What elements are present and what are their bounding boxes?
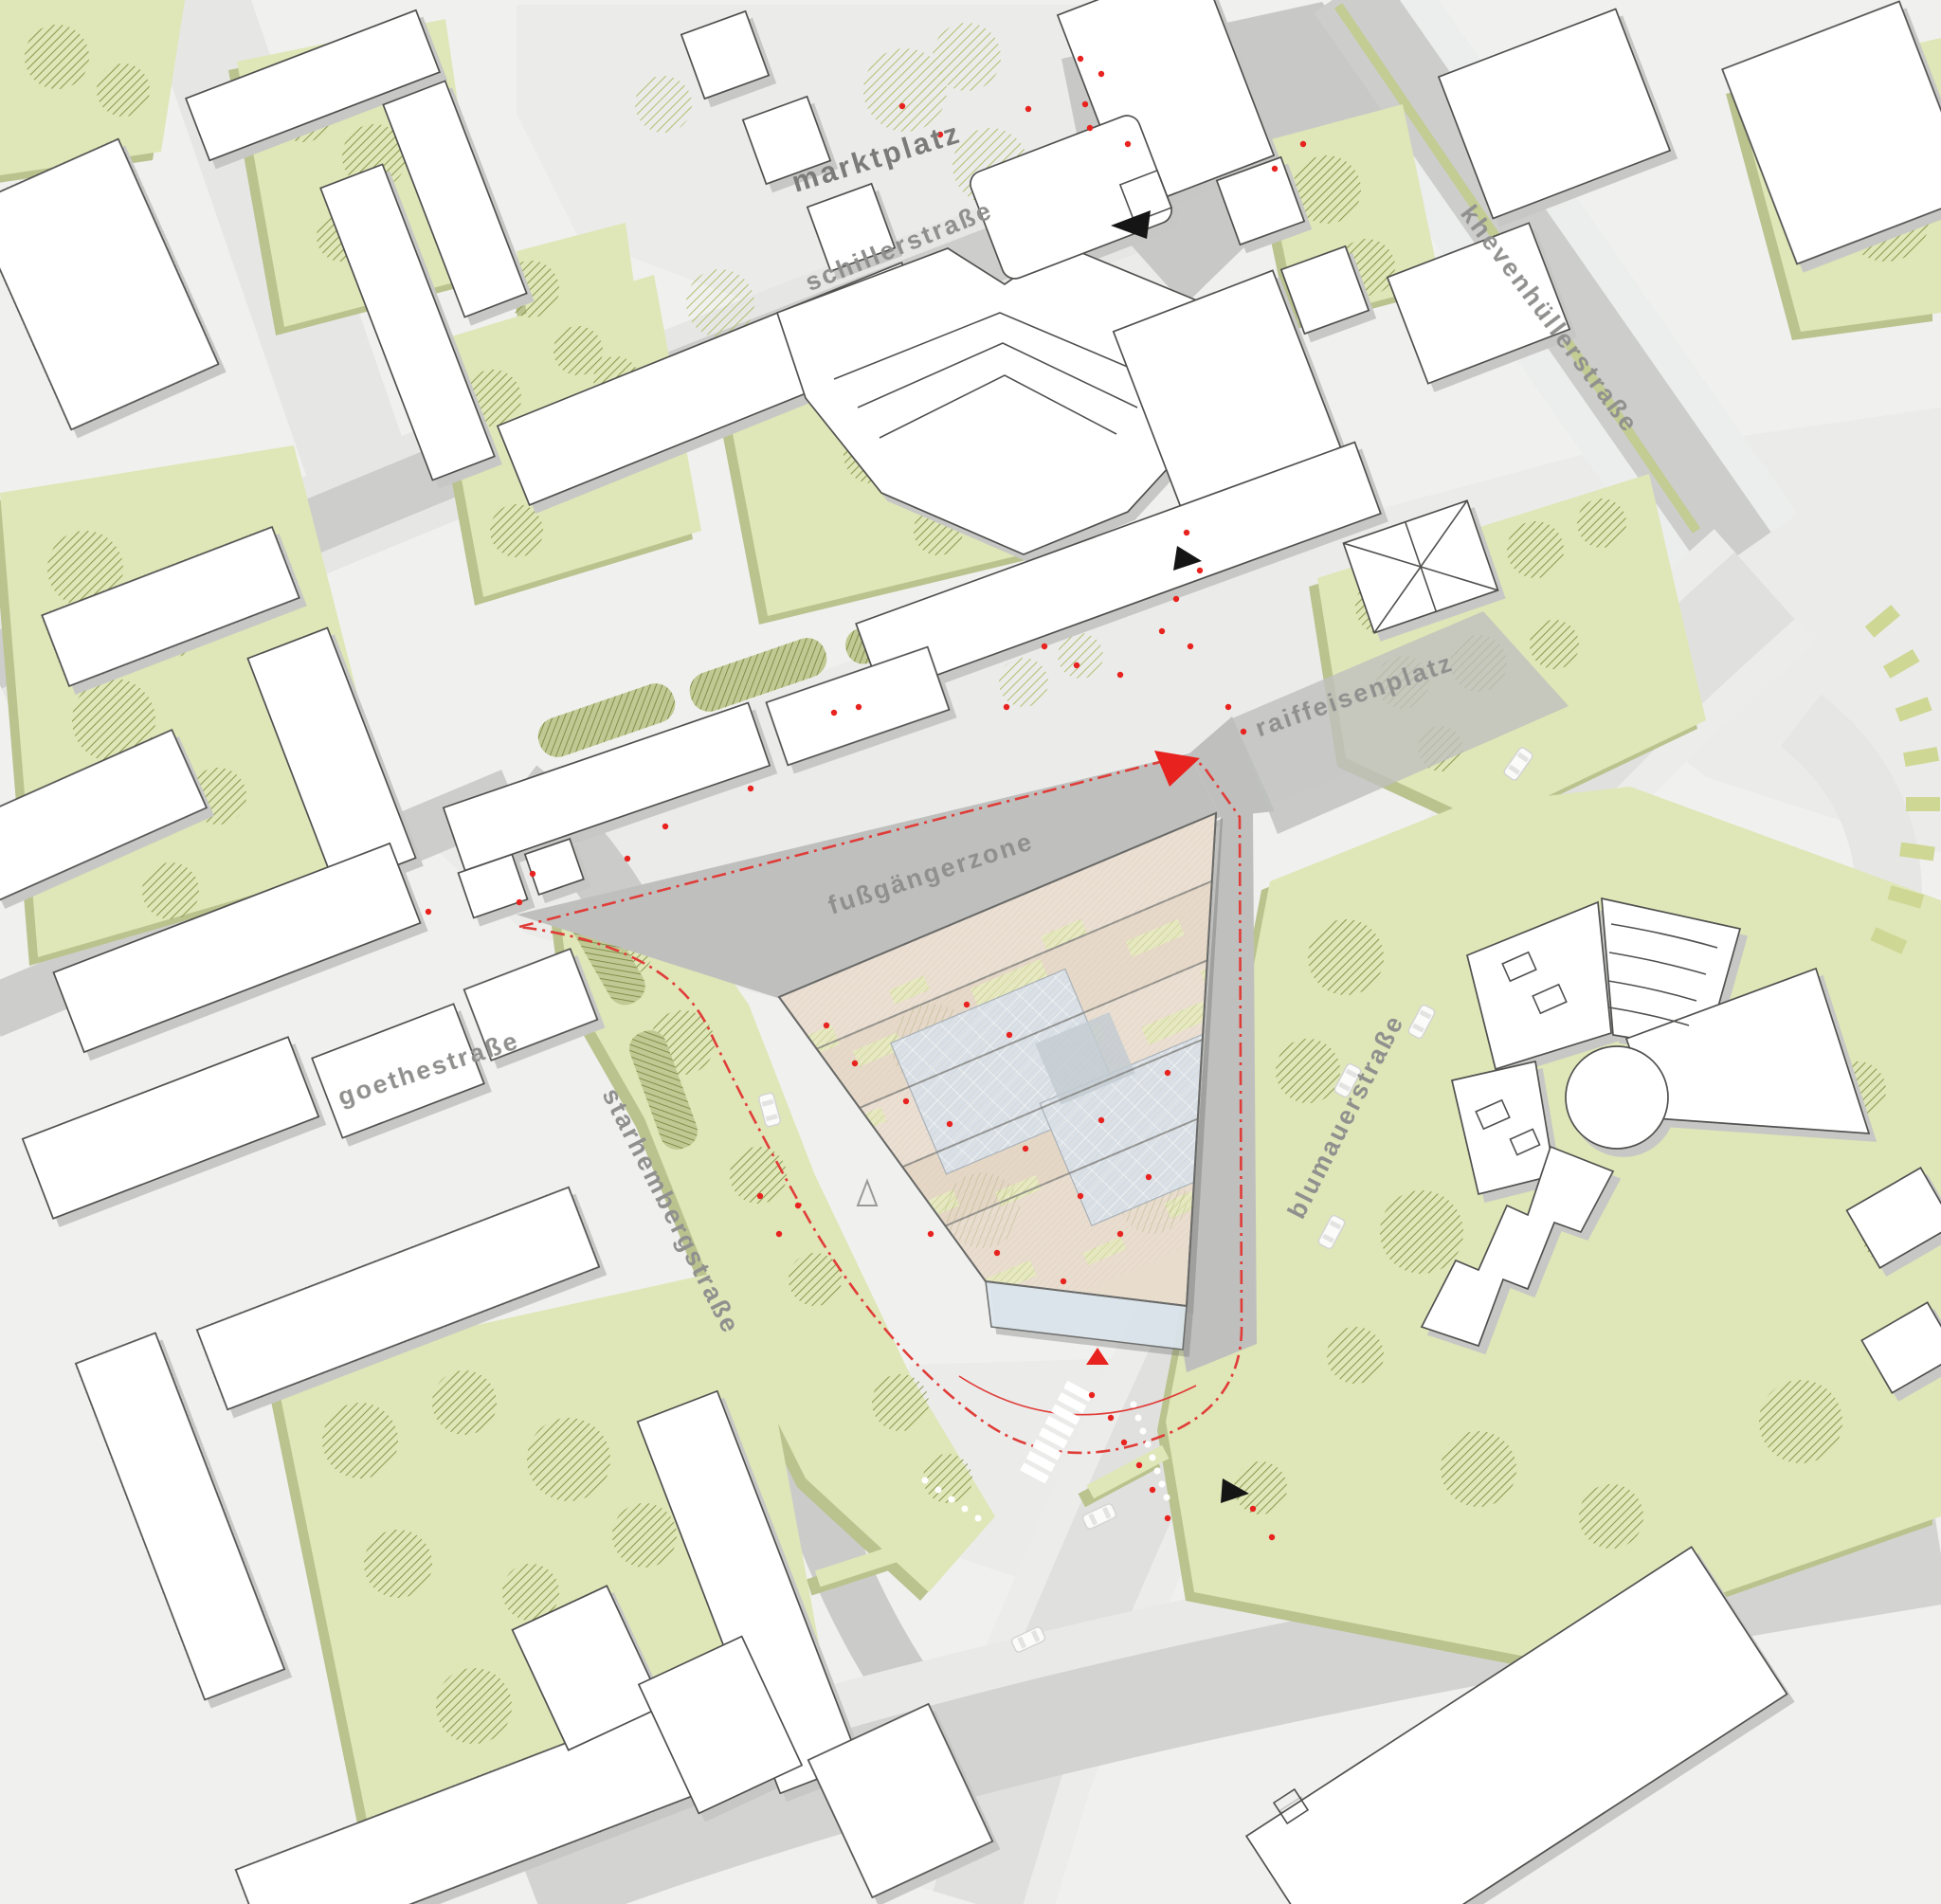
site-plan-map: marktplatz schillerstraße khevenhüllerst… <box>0 0 1941 1904</box>
site-plan-svg: marktplatz schillerstraße khevenhüllerst… <box>0 0 1941 1904</box>
